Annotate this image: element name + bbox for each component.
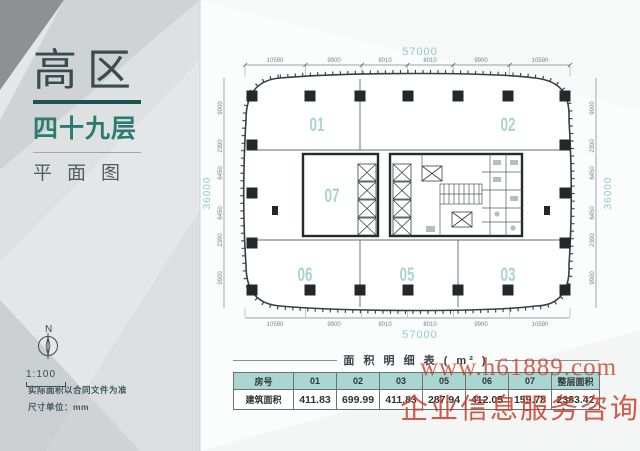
scale-label: 1:100 [26, 369, 72, 380]
svg-text:6450: 6450 [590, 206, 596, 220]
svg-text:9900: 9900 [590, 101, 596, 115]
svg-text:8010: 8010 [423, 58, 437, 64]
svg-text:9900: 9900 [474, 322, 488, 328]
note-accuracy: 实际面积以合同文件为准 [28, 384, 127, 396]
svg-text:9900: 9900 [590, 271, 596, 285]
svg-text:10590: 10590 [532, 58, 549, 64]
left-dim-labels: 9900 2390 6450 6450 2390 9900 [218, 101, 224, 285]
svg-text:9900: 9900 [474, 58, 488, 64]
stairs [440, 184, 482, 204]
watermark-slogan: 企业信息服务咨询 [400, 387, 640, 427]
total-height-right: 36000 [603, 177, 614, 210]
floor-plan-drawing: 10590 9900 8010 8010 9900 10590 57000 10… [200, 0, 640, 350]
svg-text:9900: 9900 [218, 101, 224, 115]
unit-label-01: 01 [310, 115, 325, 136]
unit-label-06: 06 [298, 265, 313, 286]
svg-text:6450: 6450 [218, 166, 224, 180]
svg-text:6450: 6450 [218, 206, 224, 220]
unit-label-02: 02 [501, 115, 516, 136]
zone-title: 高区 [33, 46, 143, 96]
top-dim-labels: 10590 9900 8010 8010 9900 10590 [267, 58, 549, 64]
svg-text:9900: 9900 [327, 58, 341, 64]
title-divider-thin [33, 152, 141, 153]
page: 高区 四十九层 平面图 N 1:100 实际面积以合同文件为准 尺寸单位：mm [0, 0, 640, 451]
notes: 实际面积以合同文件为准 尺寸单位：mm [28, 384, 127, 418]
unit-label-03: 03 [501, 265, 516, 286]
header-01: 01 [294, 373, 337, 390]
area-02: 699.99 [337, 390, 380, 410]
header-room-no: 房号 [234, 373, 294, 390]
svg-text:9900: 9900 [218, 271, 224, 285]
total-width-top: 57000 [402, 46, 438, 58]
header-02: 02 [337, 373, 380, 390]
title-divider-thick [33, 100, 141, 104]
total-height-left: 36000 [202, 177, 213, 210]
compass-n-label: N [45, 324, 52, 335]
area-01: 411.83 [294, 390, 337, 410]
title-line-left [233, 360, 337, 361]
title-block: 高区 四十九层 平面图 [33, 46, 143, 185]
svg-text:2390: 2390 [590, 233, 596, 247]
plan-type-title: 平面图 [33, 158, 143, 185]
svg-text:10590: 10590 [532, 322, 549, 328]
svg-text:6450: 6450 [590, 166, 596, 180]
floor-title: 四十九层 [33, 109, 143, 145]
unit-label-07: 07 [325, 186, 340, 207]
total-width-bottom: 57000 [402, 329, 438, 341]
north-compass-icon: N [26, 322, 72, 362]
unit-label-05: 05 [400, 265, 415, 286]
svg-text:2390: 2390 [218, 233, 224, 247]
svg-text:10590: 10590 [267, 322, 284, 328]
row-label-gfa: 建筑面积 [234, 390, 294, 410]
svg-text:8010: 8010 [423, 322, 437, 328]
right-dim-labels: 9900 2390 6450 6450 2390 9900 [590, 101, 596, 285]
compass-scale: N 1:100 [26, 322, 72, 387]
bottom-dim-labels: 10590 9900 8010 8010 9900 10590 [267, 322, 549, 328]
note-units: 尺寸单位：mm [28, 401, 127, 413]
watermark-url: www.h61889.com [420, 354, 617, 382]
svg-text:2390: 2390 [590, 139, 596, 153]
svg-text:8010: 8010 [378, 322, 392, 328]
svg-text:8010: 8010 [378, 58, 392, 64]
svg-text:10590: 10590 [267, 58, 284, 64]
svg-text:2390: 2390 [218, 139, 224, 153]
svg-text:9900: 9900 [327, 322, 341, 328]
